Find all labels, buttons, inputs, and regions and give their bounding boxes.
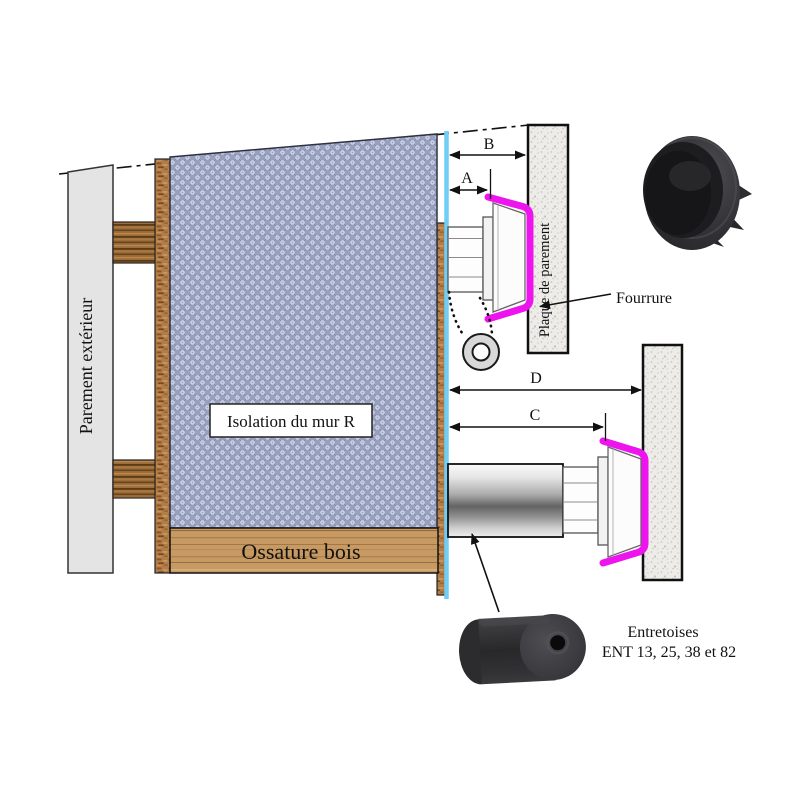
lower-fastener-flange (598, 457, 608, 545)
dimension-c-label: C (530, 407, 541, 424)
entretoises-ref: ENT 13, 25, 38 et 82 (602, 644, 736, 661)
cladding-crossbar-bottom (113, 460, 156, 498)
cladding-crossbar-top (113, 222, 156, 263)
exterior-cladding-panel: Parement extérieur (68, 165, 113, 573)
washer-hole (473, 344, 490, 361)
facing-board-lower-shape (643, 345, 682, 580)
entretoise-spacer-photo (457, 612, 587, 685)
dimension-c: C (450, 407, 606, 441)
technical-diagram-svg: Parement extérieur Isolation du mur R Os… (0, 0, 800, 800)
diagram-canvas: Parement extérieur Isolation du mur R Os… (0, 0, 800, 800)
dimension-b: B (450, 136, 525, 155)
insulation-label: Isolation du mur R (227, 412, 356, 431)
lower-fastener-rod (563, 467, 598, 533)
dimension-a-label: A (461, 170, 473, 187)
dimension-b-label: B (484, 136, 495, 153)
dimension-d: D (450, 370, 641, 390)
insulation-block: Isolation du mur R (170, 134, 437, 528)
upper-fastener (448, 197, 530, 319)
dimension-a: A (450, 169, 491, 199)
exploded-view-links (449, 292, 499, 370)
exterior-cladding-label: Parement extérieur (76, 298, 96, 434)
plastic-cap-photo (643, 136, 752, 250)
facing-board-label: Plaque de parement (537, 223, 553, 337)
facing-board-upper: Plaque de parement (528, 125, 568, 353)
fourrure-label: Fourrure (616, 290, 672, 307)
lower-fastener (448, 441, 645, 563)
wood-frame-plate: Ossature bois (170, 528, 438, 573)
wood-frame-label: Ossature bois (241, 539, 360, 564)
entretoises-title: Entretoises (627, 624, 698, 641)
spacer-cylinder (448, 464, 563, 537)
upper-fastener-flange (483, 217, 493, 300)
dimension-d-label: D (530, 370, 542, 387)
insulation-shape (170, 134, 437, 528)
vertical-batten-left (155, 159, 170, 573)
upper-fastener-rod (448, 227, 483, 292)
